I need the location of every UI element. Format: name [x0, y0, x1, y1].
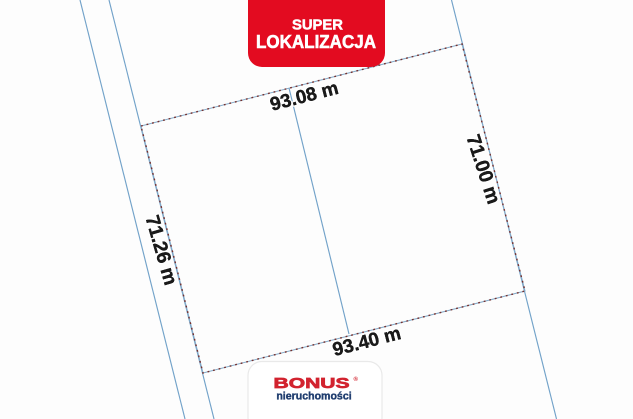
svg-text:®: ®	[354, 376, 359, 383]
svg-text:LOKALIZACJA: LOKALIZACJA	[256, 31, 376, 52]
svg-text:nieruchomości: nieruchomości	[276, 391, 351, 403]
